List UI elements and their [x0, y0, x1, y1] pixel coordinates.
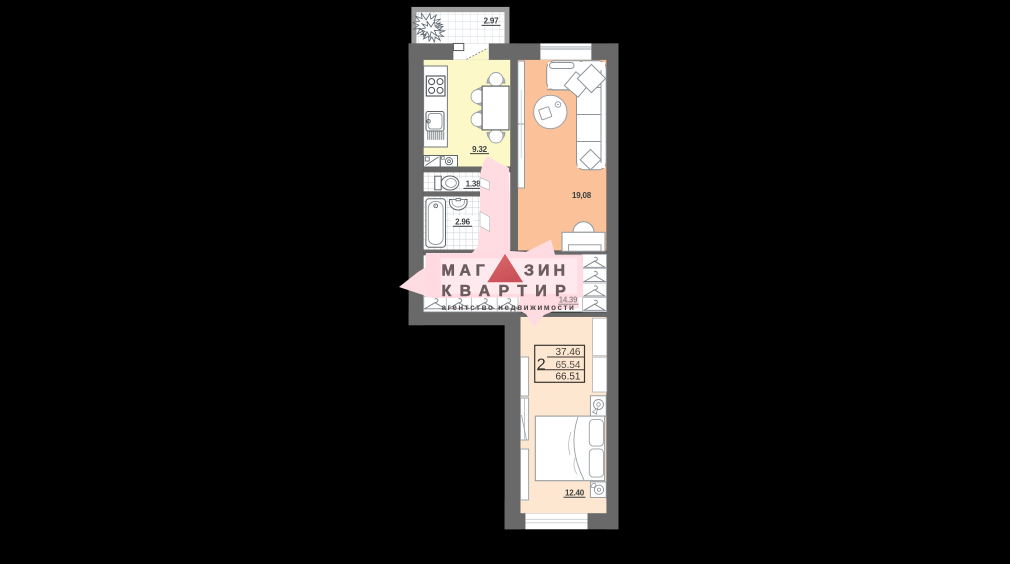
- svg-text:КВАРТИР: КВАРТИР: [442, 283, 575, 300]
- svg-text:МАГ: МАГ: [442, 262, 490, 279]
- svg-text:2: 2: [537, 356, 546, 373]
- svg-text:66.51: 66.51: [555, 372, 580, 383]
- svg-text:12.40: 12.40: [565, 488, 585, 497]
- svg-text:1.38: 1.38: [466, 180, 482, 189]
- svg-text:37.46: 37.46: [555, 347, 580, 358]
- svg-text:ЗИН: ЗИН: [524, 262, 569, 279]
- svg-text:9.32: 9.32: [472, 145, 488, 154]
- svg-text:2.96: 2.96: [455, 217, 471, 226]
- svg-text:агентство недвижимости: агентство недвижимости: [442, 303, 576, 312]
- svg-text:2.97: 2.97: [484, 16, 500, 25]
- svg-text:19,08: 19,08: [572, 191, 592, 200]
- svg-text:65.54: 65.54: [555, 360, 580, 371]
